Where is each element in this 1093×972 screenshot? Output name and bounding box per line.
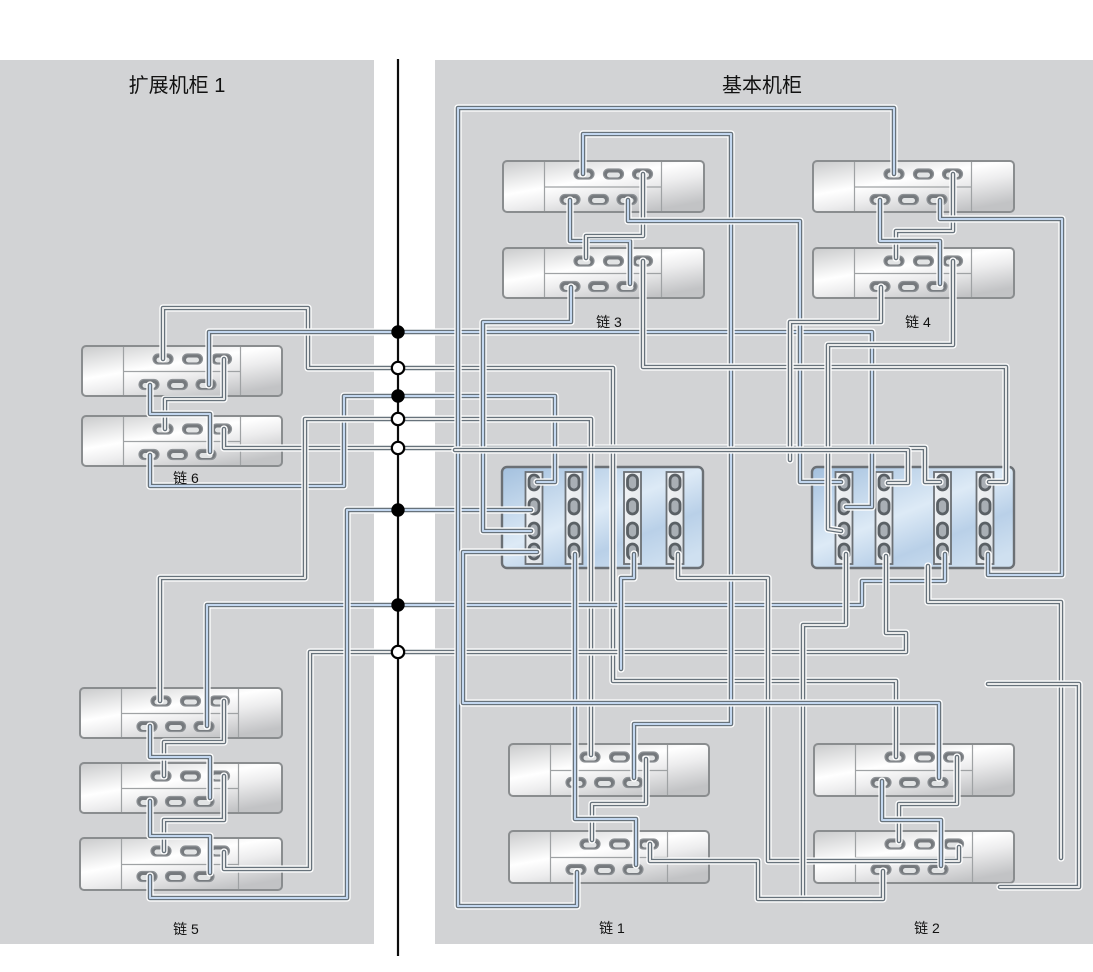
svg-text:链 1: 链 1 [599, 920, 625, 936]
svg-text:扩展机柜 1: 扩展机柜 1 [129, 74, 226, 97]
svg-text:链 6: 链 6 [173, 470, 199, 486]
svg-text:基本机柜: 基本机柜 [722, 74, 802, 97]
svg-text:链 4: 链 4 [905, 314, 931, 330]
svg-text:链 2: 链 2 [914, 920, 940, 936]
svg-text:链 3: 链 3 [596, 314, 622, 330]
svg-text:链 5: 链 5 [173, 921, 199, 937]
